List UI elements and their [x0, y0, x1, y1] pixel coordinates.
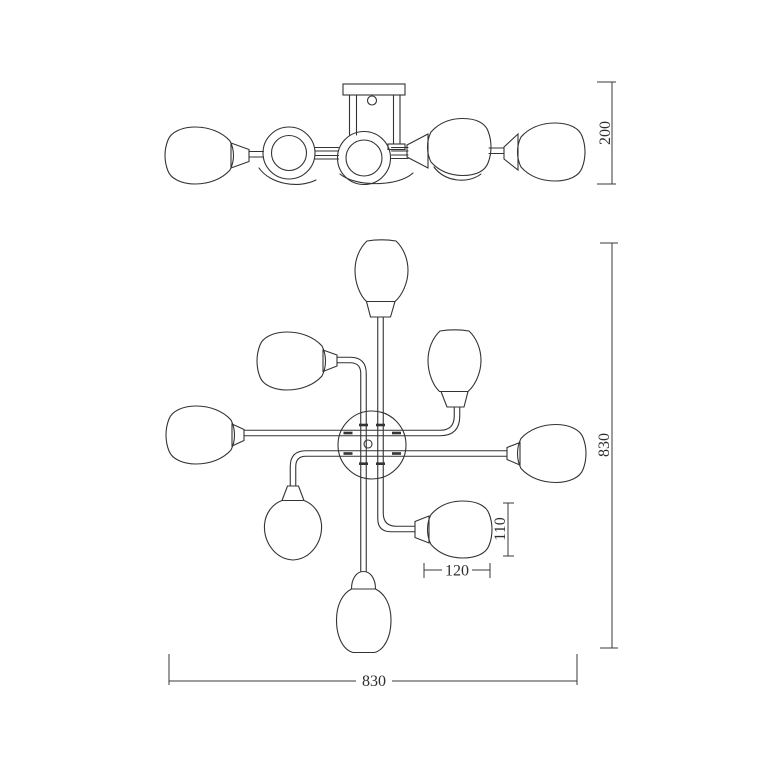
plan-shade-right — [507, 425, 586, 483]
dimension-shade-width: 120 — [424, 563, 490, 580]
side-shade-c — [407, 119, 491, 181]
side-center-arms — [315, 148, 339, 160]
side-shade-left — [165, 127, 264, 184]
dim-label-120: 120 — [445, 563, 469, 580]
arm-right-lowerleft — [290, 451, 507, 486]
chandelier-technical-drawing: 200 830 110 120 830 — [0, 0, 768, 768]
shade-behind-arc — [434, 167, 481, 180]
plan-shade-top — [355, 240, 408, 317]
plan-shade-upper-left — [257, 332, 337, 390]
arm-left-upperright — [244, 407, 460, 436]
technical-drawing-page: 200 830 110 120 830 — [0, 0, 768, 768]
dim-label-830-right: 830 — [596, 433, 613, 457]
plan-shade-lower-left — [264, 486, 321, 560]
side-shade-d — [489, 123, 585, 181]
shade-behind-arc — [340, 173, 413, 184]
plan-shade-left — [166, 406, 244, 464]
plan-shade-bottom — [337, 572, 392, 653]
dimension-overall-width: 830 — [169, 654, 577, 690]
side-shade-ring-a — [259, 127, 316, 184]
dimension-shade-height: 110 — [492, 503, 514, 556]
side-elevation-view — [165, 84, 585, 185]
dim-label-830-bottom: 830 — [362, 673, 386, 690]
dim-label-200: 200 — [597, 121, 614, 145]
ceiling-plate — [343, 84, 405, 95]
dimension-plan-height: 830 — [596, 243, 618, 648]
plan-shade-upper-right — [428, 330, 481, 407]
plan-shade-lower-right — [415, 501, 492, 558]
mount-screw — [368, 96, 377, 105]
plan-view — [166, 240, 586, 653]
dim-label-110: 110 — [492, 517, 509, 540]
canopy-screw — [364, 440, 372, 448]
dimension-fixture-height: 200 — [597, 82, 616, 184]
